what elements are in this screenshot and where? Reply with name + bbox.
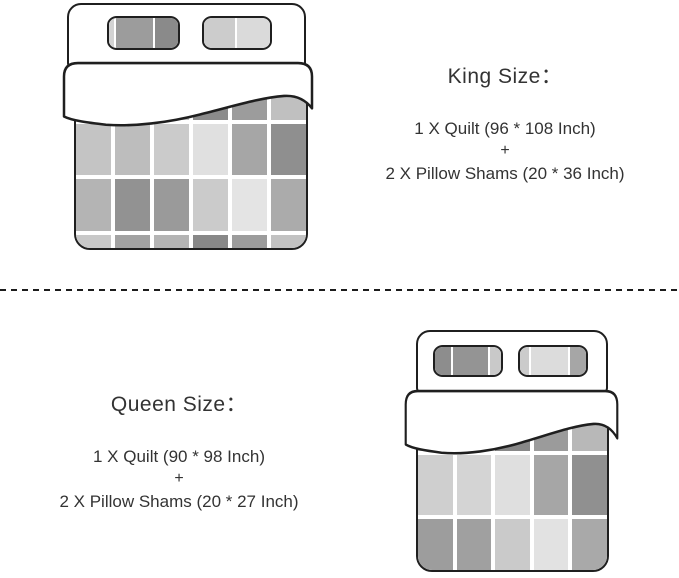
quilt-patch	[572, 455, 607, 515]
queen-sheet	[404, 389, 619, 463]
king-size-info: King Size： 1 X Quilt (96 * 108 Inch) + 2…	[350, 60, 660, 185]
queen-pillow-right	[518, 345, 588, 377]
pillow-segment	[204, 18, 235, 48]
quilt-patch	[193, 179, 228, 231]
quilt-patch	[232, 179, 267, 231]
quilt-patch	[457, 519, 492, 570]
quilt-patch	[193, 235, 228, 248]
queen-shams-spec: 2 X Pillow Shams (20 * 27 Inch)	[24, 490, 334, 513]
dashed-divider	[0, 289, 679, 291]
quilt-patch	[115, 179, 150, 231]
king-plus-sign: +	[350, 140, 660, 162]
quilt-patch	[154, 179, 189, 231]
king-pillow-left	[107, 16, 180, 50]
quilt-patch	[534, 519, 569, 570]
queen-quilt-spec: 1 X Quilt (90 * 98 Inch)	[24, 445, 334, 468]
king-quilt-spec: 1 X Quilt (96 * 108 Inch)	[350, 117, 660, 140]
pillow-segment	[109, 18, 114, 48]
quilt-patch	[418, 455, 453, 515]
king-size-title: King Size：	[350, 60, 660, 90]
queen-plus-sign: +	[24, 468, 334, 490]
queen-pillow-left	[433, 345, 503, 377]
quilt-patch	[76, 235, 111, 248]
king-bed-illustration	[62, 3, 314, 251]
queen-size-title: Queen Size：	[24, 388, 334, 418]
king-pillow-right	[202, 16, 272, 50]
quilt-patch	[115, 235, 150, 248]
quilt-patch	[534, 455, 569, 515]
pillow-segment	[155, 18, 178, 48]
quilt-patch	[271, 235, 306, 248]
quilt-patch	[418, 519, 453, 570]
pillow-segment	[520, 347, 529, 375]
quilt-patch	[457, 455, 492, 515]
king-sheet	[62, 61, 314, 135]
quilt-patch	[76, 179, 111, 231]
pillow-segment	[570, 347, 586, 375]
pillow-segment	[490, 347, 501, 375]
quilt-patch	[154, 235, 189, 248]
queen-size-info: Queen Size： 1 X Quilt (90 * 98 Inch) + 2…	[24, 388, 334, 513]
quilt-patch	[495, 455, 530, 515]
quilt-patch	[271, 179, 306, 231]
quilt-patch	[495, 519, 530, 570]
pillow-segment	[453, 347, 488, 375]
pillow-segment	[116, 18, 152, 48]
queen-bed-illustration	[402, 328, 621, 574]
quilt-patch	[572, 519, 607, 570]
pillow-segment	[531, 347, 568, 375]
pillow-segment	[237, 18, 270, 48]
quilt-patch	[232, 235, 267, 248]
bedding-size-chart: King Size： 1 X Quilt (96 * 108 Inch) + 2…	[0, 0, 679, 578]
pillow-segment	[435, 347, 451, 375]
king-shams-spec: 2 X Pillow Shams (20 * 36 Inch)	[350, 162, 660, 185]
